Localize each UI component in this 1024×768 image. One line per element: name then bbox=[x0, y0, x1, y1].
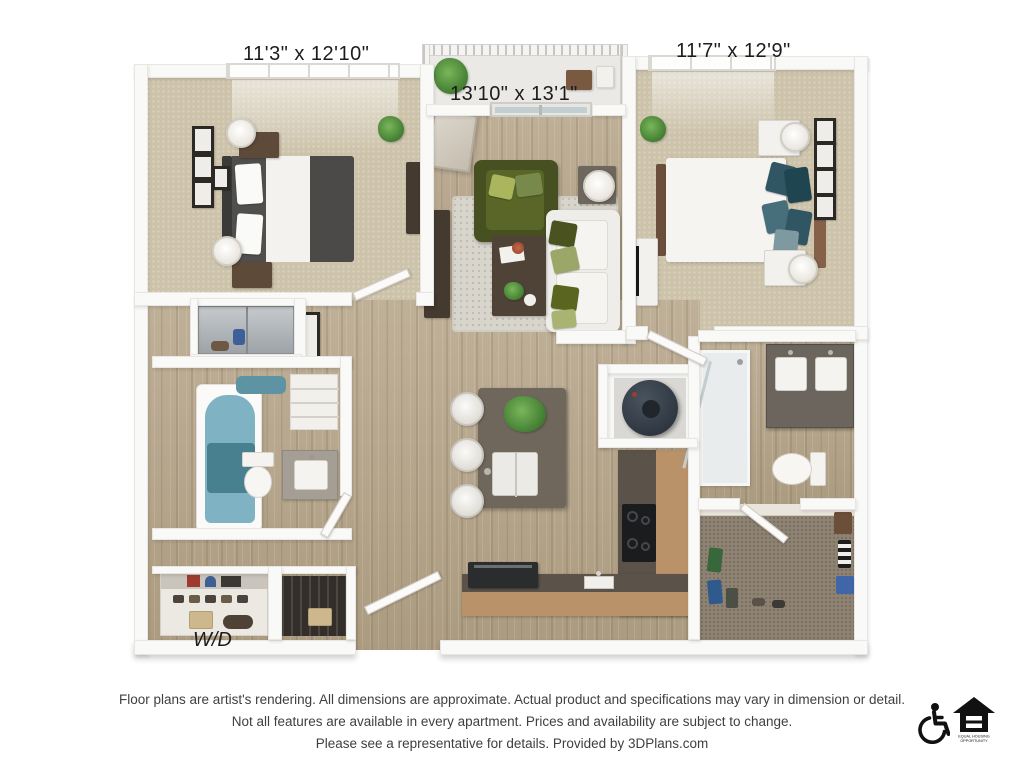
burner bbox=[627, 538, 638, 549]
shelf-line bbox=[291, 416, 339, 418]
equal-housing-opportunity-icon: EQUAL HOUSING OPPORTUNITY bbox=[952, 696, 996, 744]
range-appliance bbox=[468, 562, 538, 588]
faucet bbox=[788, 350, 793, 355]
shoes bbox=[205, 595, 216, 603]
wall bbox=[420, 64, 434, 306]
wall bbox=[190, 298, 198, 362]
valve bbox=[632, 392, 637, 397]
pillow bbox=[550, 284, 579, 311]
island-sink bbox=[492, 452, 538, 496]
coffee-table bbox=[492, 236, 546, 316]
wall-art bbox=[814, 118, 836, 144]
toilet-tank bbox=[242, 452, 274, 467]
pillow bbox=[551, 309, 577, 329]
window-light-right bbox=[652, 72, 774, 134]
wall-art bbox=[814, 168, 836, 196]
washer-dryer-label: W/D bbox=[193, 629, 232, 652]
wall bbox=[698, 330, 856, 342]
wall-art bbox=[212, 166, 230, 190]
wall bbox=[294, 298, 306, 362]
table-lamp bbox=[788, 254, 818, 284]
plant bbox=[504, 282, 524, 300]
hanging-clothes bbox=[707, 579, 723, 604]
wall bbox=[688, 336, 700, 640]
table-lamp bbox=[226, 118, 256, 148]
bed-left bbox=[222, 156, 354, 262]
bed-left-duvet bbox=[310, 156, 354, 262]
hanging-clothes bbox=[707, 547, 723, 572]
bathroom-vanity bbox=[282, 450, 338, 500]
balcony-chair bbox=[596, 66, 614, 88]
closet-door-divider bbox=[246, 307, 248, 355]
wall bbox=[800, 498, 856, 510]
storage-box bbox=[187, 575, 200, 587]
duffel-bag bbox=[223, 615, 253, 629]
basket bbox=[189, 611, 213, 629]
plant bbox=[640, 116, 666, 142]
toilet bbox=[770, 450, 828, 488]
utility-closet bbox=[608, 372, 692, 444]
pillow bbox=[548, 220, 578, 248]
laundry-storage-closet bbox=[160, 572, 268, 636]
walkin-closet-floor bbox=[700, 504, 854, 644]
burner bbox=[641, 542, 650, 551]
wall bbox=[556, 330, 626, 344]
faucet bbox=[828, 350, 833, 355]
storage-item bbox=[205, 576, 216, 587]
pillow bbox=[550, 246, 580, 275]
sink bbox=[815, 357, 847, 391]
hanging-clothes bbox=[838, 540, 851, 568]
double-vanity bbox=[766, 344, 854, 428]
wall bbox=[340, 356, 352, 496]
sink-divider bbox=[515, 453, 517, 497]
shower bbox=[700, 350, 750, 486]
balcony-railing bbox=[424, 44, 628, 56]
door-mullion bbox=[539, 105, 542, 115]
kitchen-sink bbox=[584, 576, 614, 589]
plant bbox=[378, 116, 404, 142]
toilet-bowl bbox=[244, 466, 272, 498]
bar-stool bbox=[450, 484, 484, 518]
drum-lamp bbox=[583, 170, 615, 202]
floor-plan-page: 11'3" x 12'10" 13'10" x 13'1" 11'7" x 12… bbox=[0, 0, 1024, 768]
shoes bbox=[173, 595, 184, 603]
shoes bbox=[189, 595, 200, 603]
wall bbox=[268, 566, 282, 640]
wall bbox=[592, 104, 626, 116]
burner bbox=[627, 511, 638, 522]
cooktop bbox=[622, 504, 656, 562]
dimension-label-bedroom-left: 11'3" x 12'10" bbox=[243, 43, 369, 66]
tv bbox=[636, 246, 639, 296]
toilet-bowl bbox=[772, 453, 812, 485]
shelf-line bbox=[291, 402, 339, 404]
wall-art bbox=[192, 180, 214, 208]
faucet bbox=[596, 571, 601, 576]
appliance-handle bbox=[474, 565, 532, 568]
wall bbox=[416, 292, 434, 306]
wall bbox=[698, 498, 740, 510]
burner bbox=[641, 516, 650, 525]
wall bbox=[440, 640, 868, 655]
wall bbox=[152, 566, 356, 574]
faucet bbox=[309, 455, 314, 460]
wall bbox=[598, 364, 696, 374]
wall-art bbox=[192, 154, 214, 180]
pillow bbox=[235, 163, 264, 205]
wall bbox=[854, 56, 868, 655]
wall bbox=[190, 298, 302, 306]
bowl bbox=[524, 294, 536, 306]
shelf-line bbox=[291, 388, 339, 390]
bar-stool bbox=[450, 438, 484, 472]
linen-shelves bbox=[290, 374, 338, 430]
wall bbox=[622, 56, 636, 344]
hanging-clothes bbox=[726, 588, 738, 608]
kitchen-island bbox=[478, 388, 566, 508]
wall-art bbox=[814, 142, 836, 170]
disclaimer-line-1: Floor plans are artist's rendering. All … bbox=[0, 692, 1024, 707]
shoes bbox=[772, 600, 785, 608]
sink bbox=[294, 460, 328, 490]
stored-item bbox=[211, 341, 229, 351]
stored-item bbox=[233, 329, 245, 345]
pillow bbox=[515, 172, 544, 197]
bed-left-sheet bbox=[266, 156, 310, 262]
storage-box bbox=[834, 512, 852, 534]
shoes bbox=[221, 595, 232, 603]
flowers bbox=[512, 242, 524, 254]
folded-clothes bbox=[836, 576, 854, 594]
wall bbox=[346, 566, 356, 640]
basket bbox=[308, 608, 332, 626]
pillow bbox=[784, 166, 812, 203]
table-lamp bbox=[212, 236, 242, 266]
wall bbox=[134, 640, 356, 655]
wheelchair-accessible-icon bbox=[914, 702, 950, 744]
dresser-right-bedroom bbox=[636, 238, 658, 306]
disclaimer-line-2: Not all features are available in every … bbox=[0, 714, 1024, 729]
island-plant bbox=[504, 396, 546, 432]
toilet bbox=[240, 452, 278, 500]
wall bbox=[598, 438, 698, 448]
shower-head bbox=[737, 359, 743, 365]
faucet bbox=[484, 468, 491, 475]
dimension-label-living-room: 13'10" x 13'1" bbox=[450, 83, 578, 106]
table-lamp bbox=[780, 122, 810, 152]
coat-closet bbox=[282, 576, 346, 636]
dimension-label-bedroom-right: 11'7" x 12'9" bbox=[676, 40, 791, 63]
wall-art bbox=[814, 194, 836, 220]
shoes bbox=[752, 598, 765, 606]
shoes bbox=[237, 595, 248, 603]
wall bbox=[598, 364, 608, 448]
storage-item bbox=[221, 576, 241, 587]
disclaimer-line-3: Please see a representative for details.… bbox=[0, 736, 1024, 751]
reach-in-closet bbox=[198, 306, 294, 354]
equal-housing-text-line1: EQUAL HOUSING bbox=[958, 735, 990, 739]
nightstand bbox=[232, 262, 272, 288]
equal-housing-text-line2: OPPORTUNITY bbox=[960, 739, 988, 743]
wall bbox=[134, 64, 148, 655]
sofa bbox=[546, 210, 620, 332]
pillow bbox=[488, 174, 516, 201]
sink bbox=[775, 357, 807, 391]
wall bbox=[152, 356, 352, 368]
bar-stool bbox=[450, 392, 484, 426]
toilet-tank bbox=[810, 452, 826, 486]
bath-mat bbox=[236, 376, 286, 394]
wall-art bbox=[192, 126, 214, 154]
bed-right bbox=[656, 158, 828, 262]
water-heater bbox=[622, 380, 678, 436]
water-heater-cap bbox=[642, 400, 660, 418]
